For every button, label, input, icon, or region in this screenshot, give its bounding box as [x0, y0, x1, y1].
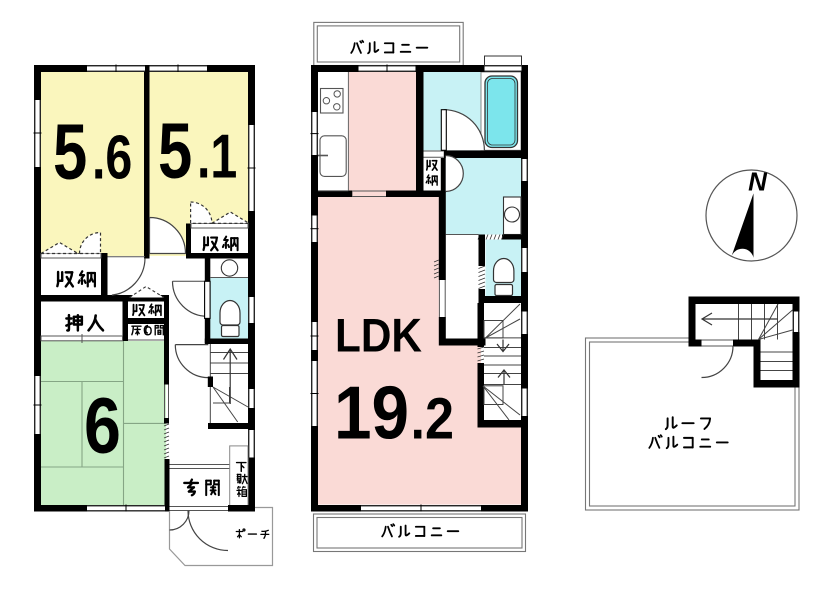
svg-text:.6: .6 [92, 123, 132, 192]
svg-text:19: 19 [334, 371, 409, 455]
svg-text:6: 6 [84, 382, 121, 470]
svg-text:N: N [748, 167, 768, 197]
svg-text:.2: .2 [411, 386, 455, 451]
svg-text:LDK: LDK [335, 311, 422, 363]
svg-text:.1: .1 [197, 122, 237, 191]
svg-text:5: 5 [158, 107, 192, 195]
svg-text:5: 5 [53, 108, 87, 196]
